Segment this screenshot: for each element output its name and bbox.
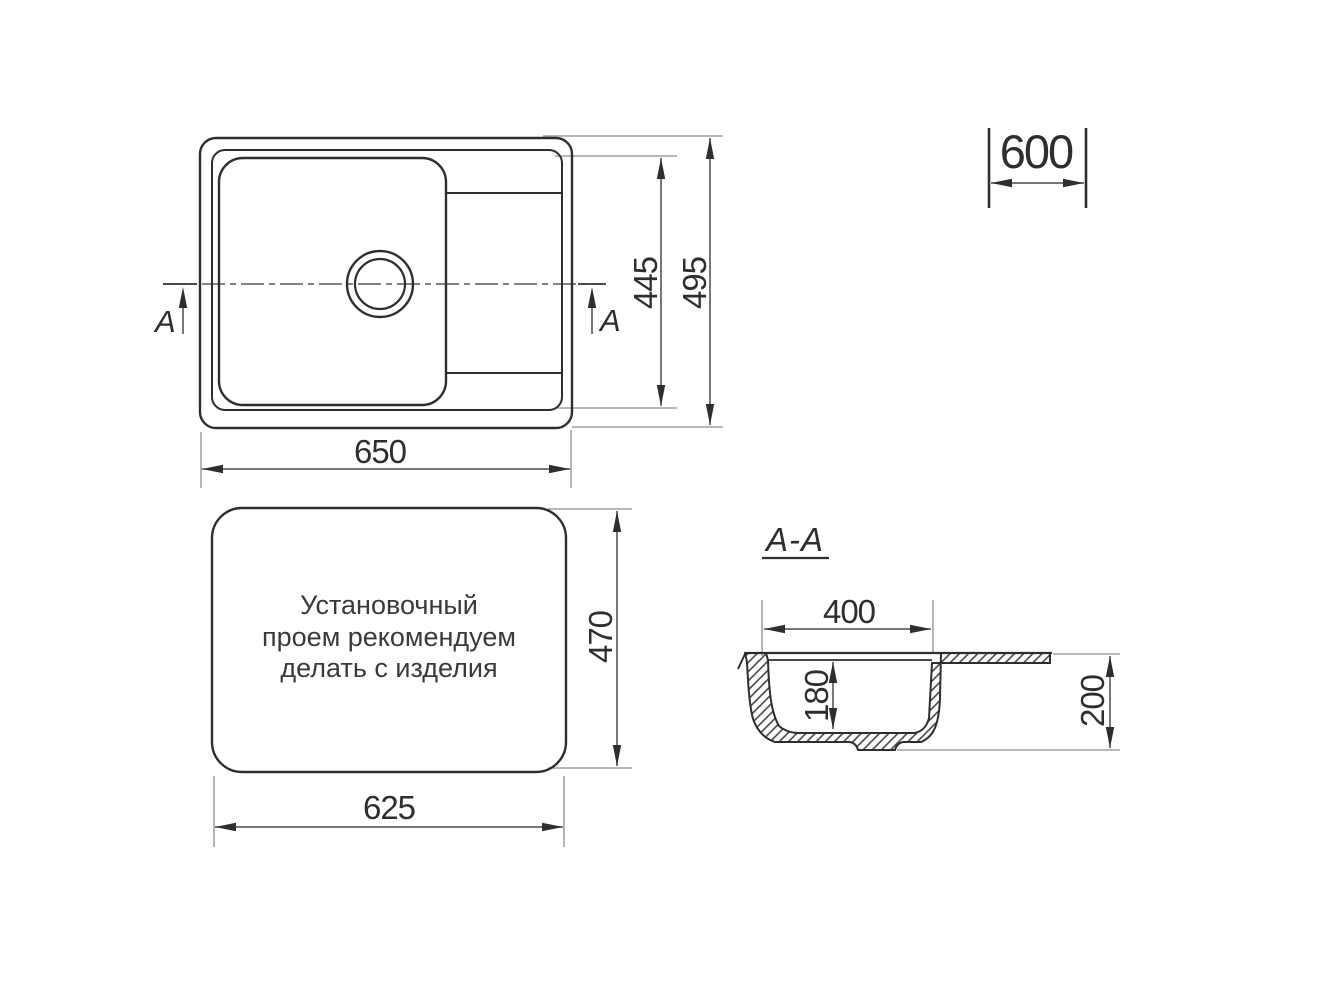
arrowhead (910, 625, 931, 633)
dim-180: 180 (798, 662, 837, 729)
dim-625-label: 625 (363, 789, 415, 826)
section-cut-mark-right: A (588, 287, 621, 338)
arrowhead (202, 465, 223, 473)
arrowhead (613, 745, 621, 766)
section-cut-arrow-icon (179, 287, 187, 308)
cutout-view: Установочный проем рекомендуем делать с … (212, 508, 632, 847)
dim-180-label: 180 (798, 669, 835, 722)
dim-400-label: 400 (823, 593, 876, 630)
section-letter-right: A (598, 303, 621, 338)
arrowhead (706, 404, 714, 425)
arrowhead (542, 823, 563, 831)
sink-dimension-drawing: 650 445 495 A (0, 0, 1330, 1000)
dim-650: 650 (202, 433, 570, 473)
cutout-note-line2: проем рекомендуем (262, 622, 516, 652)
arrowhead (215, 823, 236, 831)
arrowhead (1063, 179, 1084, 187)
section-cut-mark-left: A (153, 287, 187, 339)
dim-650-label: 650 (354, 433, 407, 470)
dim-600-label: 600 (1000, 125, 1073, 178)
section-letter-left: A (153, 304, 176, 339)
arrowhead (657, 385, 665, 406)
dim-625: 625 (215, 789, 563, 831)
dim-495: 495 (676, 138, 714, 425)
dim-200-label: 200 (1074, 674, 1111, 727)
cutout-note-line3: делать с изделия (280, 653, 497, 683)
section-title: A-A (764, 521, 824, 558)
rim-left-end-detail (738, 654, 745, 669)
section-cut-arrow-icon (588, 287, 596, 308)
arrowhead (991, 179, 1012, 187)
section-material-band (745, 653, 1050, 750)
arrowhead (657, 158, 665, 179)
arrowhead (1106, 727, 1114, 748)
sink-outer-outline (200, 138, 572, 428)
cabinet-width-dim: 600 (989, 125, 1086, 208)
dim-445-label: 445 (627, 257, 664, 309)
arrowhead (764, 625, 785, 633)
arrowhead (706, 138, 714, 159)
dim-445: 445 (627, 158, 665, 406)
technical-drawing-sheet: 650 445 495 A (0, 0, 1330, 1000)
top-view: 650 445 495 A (153, 136, 723, 488)
arrowhead (613, 511, 621, 532)
dim-470-label: 470 (582, 610, 619, 663)
dim-470: 470 (582, 511, 621, 766)
sink-rim-outline (212, 150, 562, 410)
arrowhead (1106, 656, 1114, 677)
section-view: A-A 400 180 200 (738, 521, 1120, 750)
dim-200: 200 (1074, 656, 1114, 748)
dim-495-label: 495 (676, 257, 713, 309)
cutout-note-line1: Установочный (300, 590, 478, 620)
arrowhead (549, 465, 570, 473)
dim-400: 400 (764, 593, 931, 633)
